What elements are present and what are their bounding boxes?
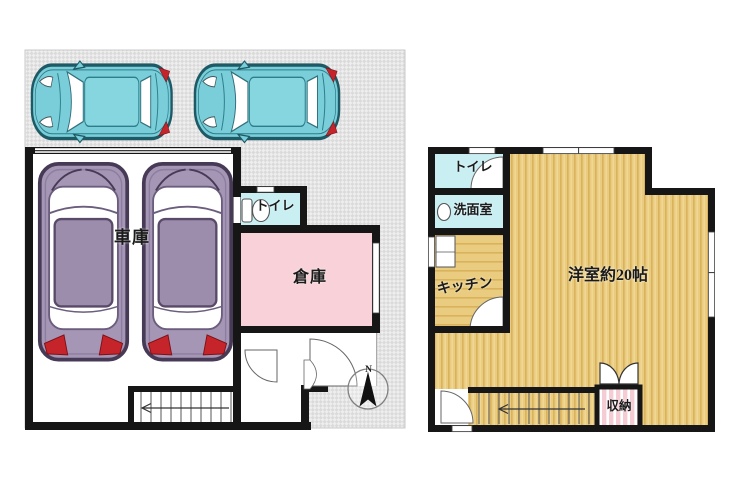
- first-floor-plan: [25, 50, 405, 430]
- stairs-1f: [128, 386, 240, 428]
- warehouse-window: [373, 243, 379, 313]
- toilet-label-1f: トイレ: [251, 199, 299, 213]
- western-room-right-window: [708, 232, 714, 317]
- closet-label: 収納: [600, 400, 638, 413]
- compass-north-label: N: [362, 366, 375, 376]
- warehouse-label: 倉庫: [282, 270, 338, 287]
- toilet-window-2f: [469, 148, 495, 154]
- toilet-window-1f: [257, 187, 274, 193]
- garage-van-1-icon: [40, 164, 127, 360]
- garage-van-2-icon: [144, 164, 231, 360]
- washroom-label: 洗面室: [444, 203, 502, 217]
- floor-plan-drawing: [0, 0, 750, 500]
- western-room-label: 洋室約20帖: [552, 268, 664, 285]
- bottom-entry-gap: [452, 426, 472, 432]
- kitchen-window: [428, 237, 434, 267]
- garage-shutter-line: [35, 150, 231, 151]
- kitchen-counter-icon: [436, 236, 455, 267]
- parking-car-2-icon: [195, 61, 339, 143]
- garage-toilet-door-gap: [234, 197, 241, 223]
- parking-car-1-icon: [32, 61, 172, 143]
- garage-label: 車庫: [104, 229, 160, 247]
- floor-plan-canvas: 車庫 倉庫 トイレ N トイレ 洗面室 キッチン 洋室約20帖 収納: [0, 0, 750, 500]
- toilet-label-2f: トイレ: [449, 160, 497, 174]
